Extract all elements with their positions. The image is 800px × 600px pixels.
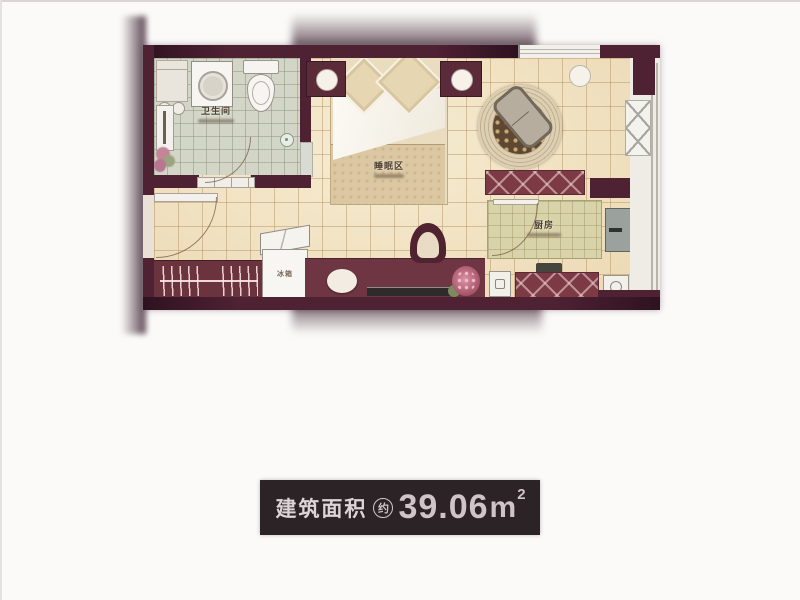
floor-plan: 卫生间 冰箱 睡眠区 xyxy=(143,45,660,310)
plant xyxy=(154,145,176,175)
kitchen-appliance xyxy=(605,208,632,252)
sleeping-size-text xyxy=(374,174,404,178)
bathroom-wall xyxy=(251,175,311,188)
fridge-label: 冰箱 xyxy=(277,271,293,278)
washing-machine xyxy=(191,61,233,107)
kitchen-size-text xyxy=(527,233,561,237)
bathroom-label-text: 卫生间 xyxy=(201,106,231,116)
lamp xyxy=(316,69,338,91)
top-window xyxy=(518,45,604,58)
bathroom-glass-panel xyxy=(300,142,313,177)
floor-drain xyxy=(280,133,294,147)
wardrobe-rail xyxy=(160,280,258,282)
toilet-tank xyxy=(243,60,279,74)
kitchen-sink xyxy=(489,271,511,297)
area-unit: m xyxy=(490,491,517,525)
wall-lamp xyxy=(569,65,591,87)
tv xyxy=(367,287,451,296)
wall-block xyxy=(590,178,630,198)
photo-edge-top xyxy=(0,0,800,2)
outer-wall-top xyxy=(143,45,518,58)
stool xyxy=(327,269,357,293)
balcony-railing xyxy=(656,63,658,291)
area-value: 39.06 xyxy=(398,488,488,527)
outer-wall-left xyxy=(143,45,154,195)
balcony-window xyxy=(625,100,651,156)
outer-wall-bottom xyxy=(143,297,660,310)
nightstand-right xyxy=(440,61,482,97)
outer-wall-top xyxy=(600,45,660,58)
kitchen-label-text: 厨房 xyxy=(534,220,554,230)
wardrobe xyxy=(153,260,265,302)
bathroom-wall xyxy=(154,175,199,188)
balcony-railing xyxy=(651,63,653,291)
fridge: 冰箱 xyxy=(262,249,308,299)
area-exponent: 2 xyxy=(517,486,525,503)
nightstand-left xyxy=(306,61,346,97)
area-bar: 建筑面积 约 39.06 m 2 xyxy=(260,480,540,535)
kitchen-upper-cabinet xyxy=(485,170,585,195)
entry-opening xyxy=(143,195,154,258)
flower-plant xyxy=(448,263,482,301)
bathroom-size-text xyxy=(198,119,234,123)
lamp xyxy=(451,69,473,91)
area-label-text: 建筑面积 xyxy=(275,493,367,523)
photo-edge-left xyxy=(0,0,2,600)
approx-badge: 约 xyxy=(373,498,393,518)
bed: 睡眠区 xyxy=(330,57,448,205)
photo-blur-top xyxy=(292,13,536,49)
sleeping-label-text: 睡眠区 xyxy=(374,161,404,171)
bathroom-label: 卫生间 xyxy=(183,107,249,123)
bathroom-vanity xyxy=(156,60,188,102)
sleeping-area-label: 睡眠区 xyxy=(349,162,429,178)
